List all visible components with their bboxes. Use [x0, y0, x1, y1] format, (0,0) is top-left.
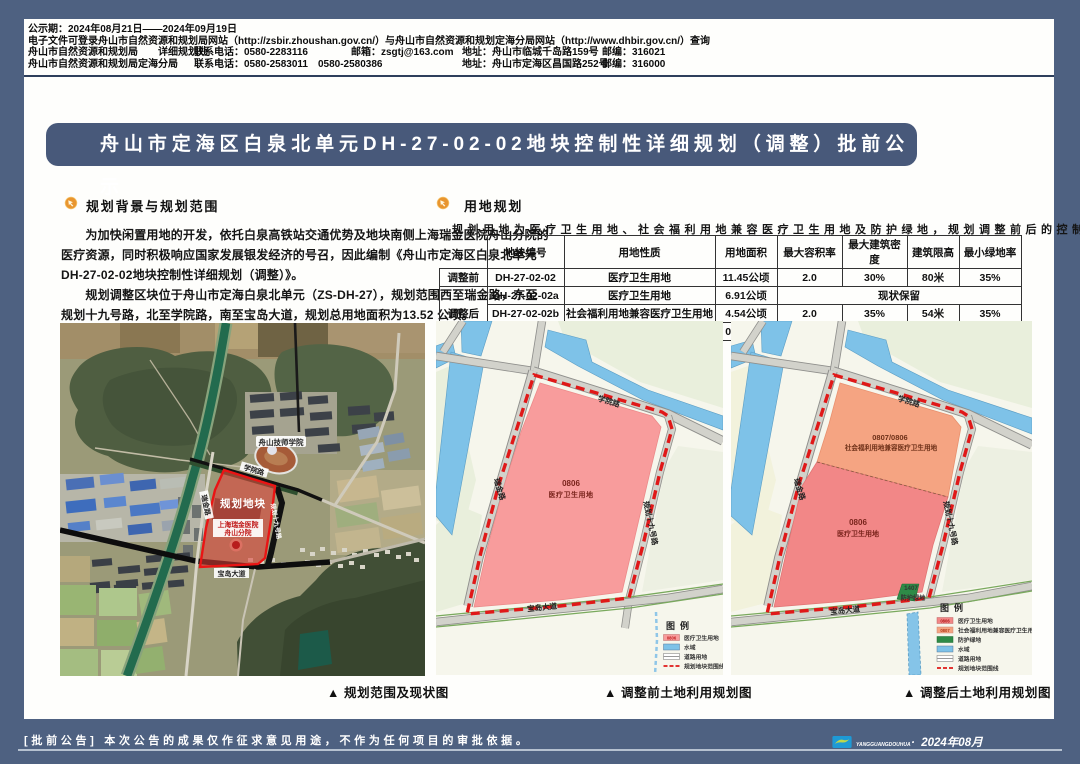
svg-text:0807/0806: 0807/0806	[872, 433, 907, 442]
svg-text:图例: 图例	[666, 620, 694, 631]
svg-text:医疗卫生用地: 医疗卫生用地	[684, 634, 719, 642]
svg-text:道路用地: 道路用地	[684, 653, 707, 661]
svg-text:水域: 水域	[684, 644, 696, 652]
svg-text:舟山分院: 舟山分院	[224, 528, 251, 537]
svg-text:0806: 0806	[849, 518, 867, 527]
svg-text:舟山技师学院: 舟山技师学院	[259, 437, 304, 447]
svg-text:规划地块范围线: 规划地块范围线	[684, 663, 723, 671]
svg-text:规划地块范围线: 规划地块范围线	[958, 665, 999, 673]
svg-text:宝岛大道: 宝岛大道	[218, 569, 246, 578]
svg-text:社会福利用地兼容医疗卫生用地: 社会福利用地兼容医疗卫生用地	[957, 627, 1032, 635]
svg-text:防护绿地: 防护绿地	[901, 594, 927, 602]
svg-text:0806: 0806	[667, 636, 677, 641]
svg-text:医疗卫生用地: 医疗卫生用地	[958, 617, 993, 625]
svg-text:0807: 0807	[940, 628, 950, 633]
svg-text:道路用地: 道路用地	[958, 655, 981, 663]
svg-text:规划地块: 规划地块	[220, 497, 266, 510]
svg-text:上海瑞金医院: 上海瑞金医院	[218, 520, 259, 529]
svg-text:0806: 0806	[562, 479, 580, 488]
svg-text:医疗卫生用地: 医疗卫生用地	[549, 490, 594, 499]
svg-text:1407: 1407	[904, 585, 918, 592]
svg-text:医疗卫生用地: 医疗卫生用地	[837, 529, 879, 538]
svg-text:图例: 图例	[940, 602, 968, 613]
svg-text:社会福利用地兼容医疗卫生用地: 社会福利用地兼容医疗卫生用地	[844, 443, 938, 452]
svg-text:防护绿地: 防护绿地	[958, 636, 981, 644]
svg-text:0806: 0806	[940, 619, 950, 624]
svg-text:水域: 水域	[958, 646, 970, 654]
